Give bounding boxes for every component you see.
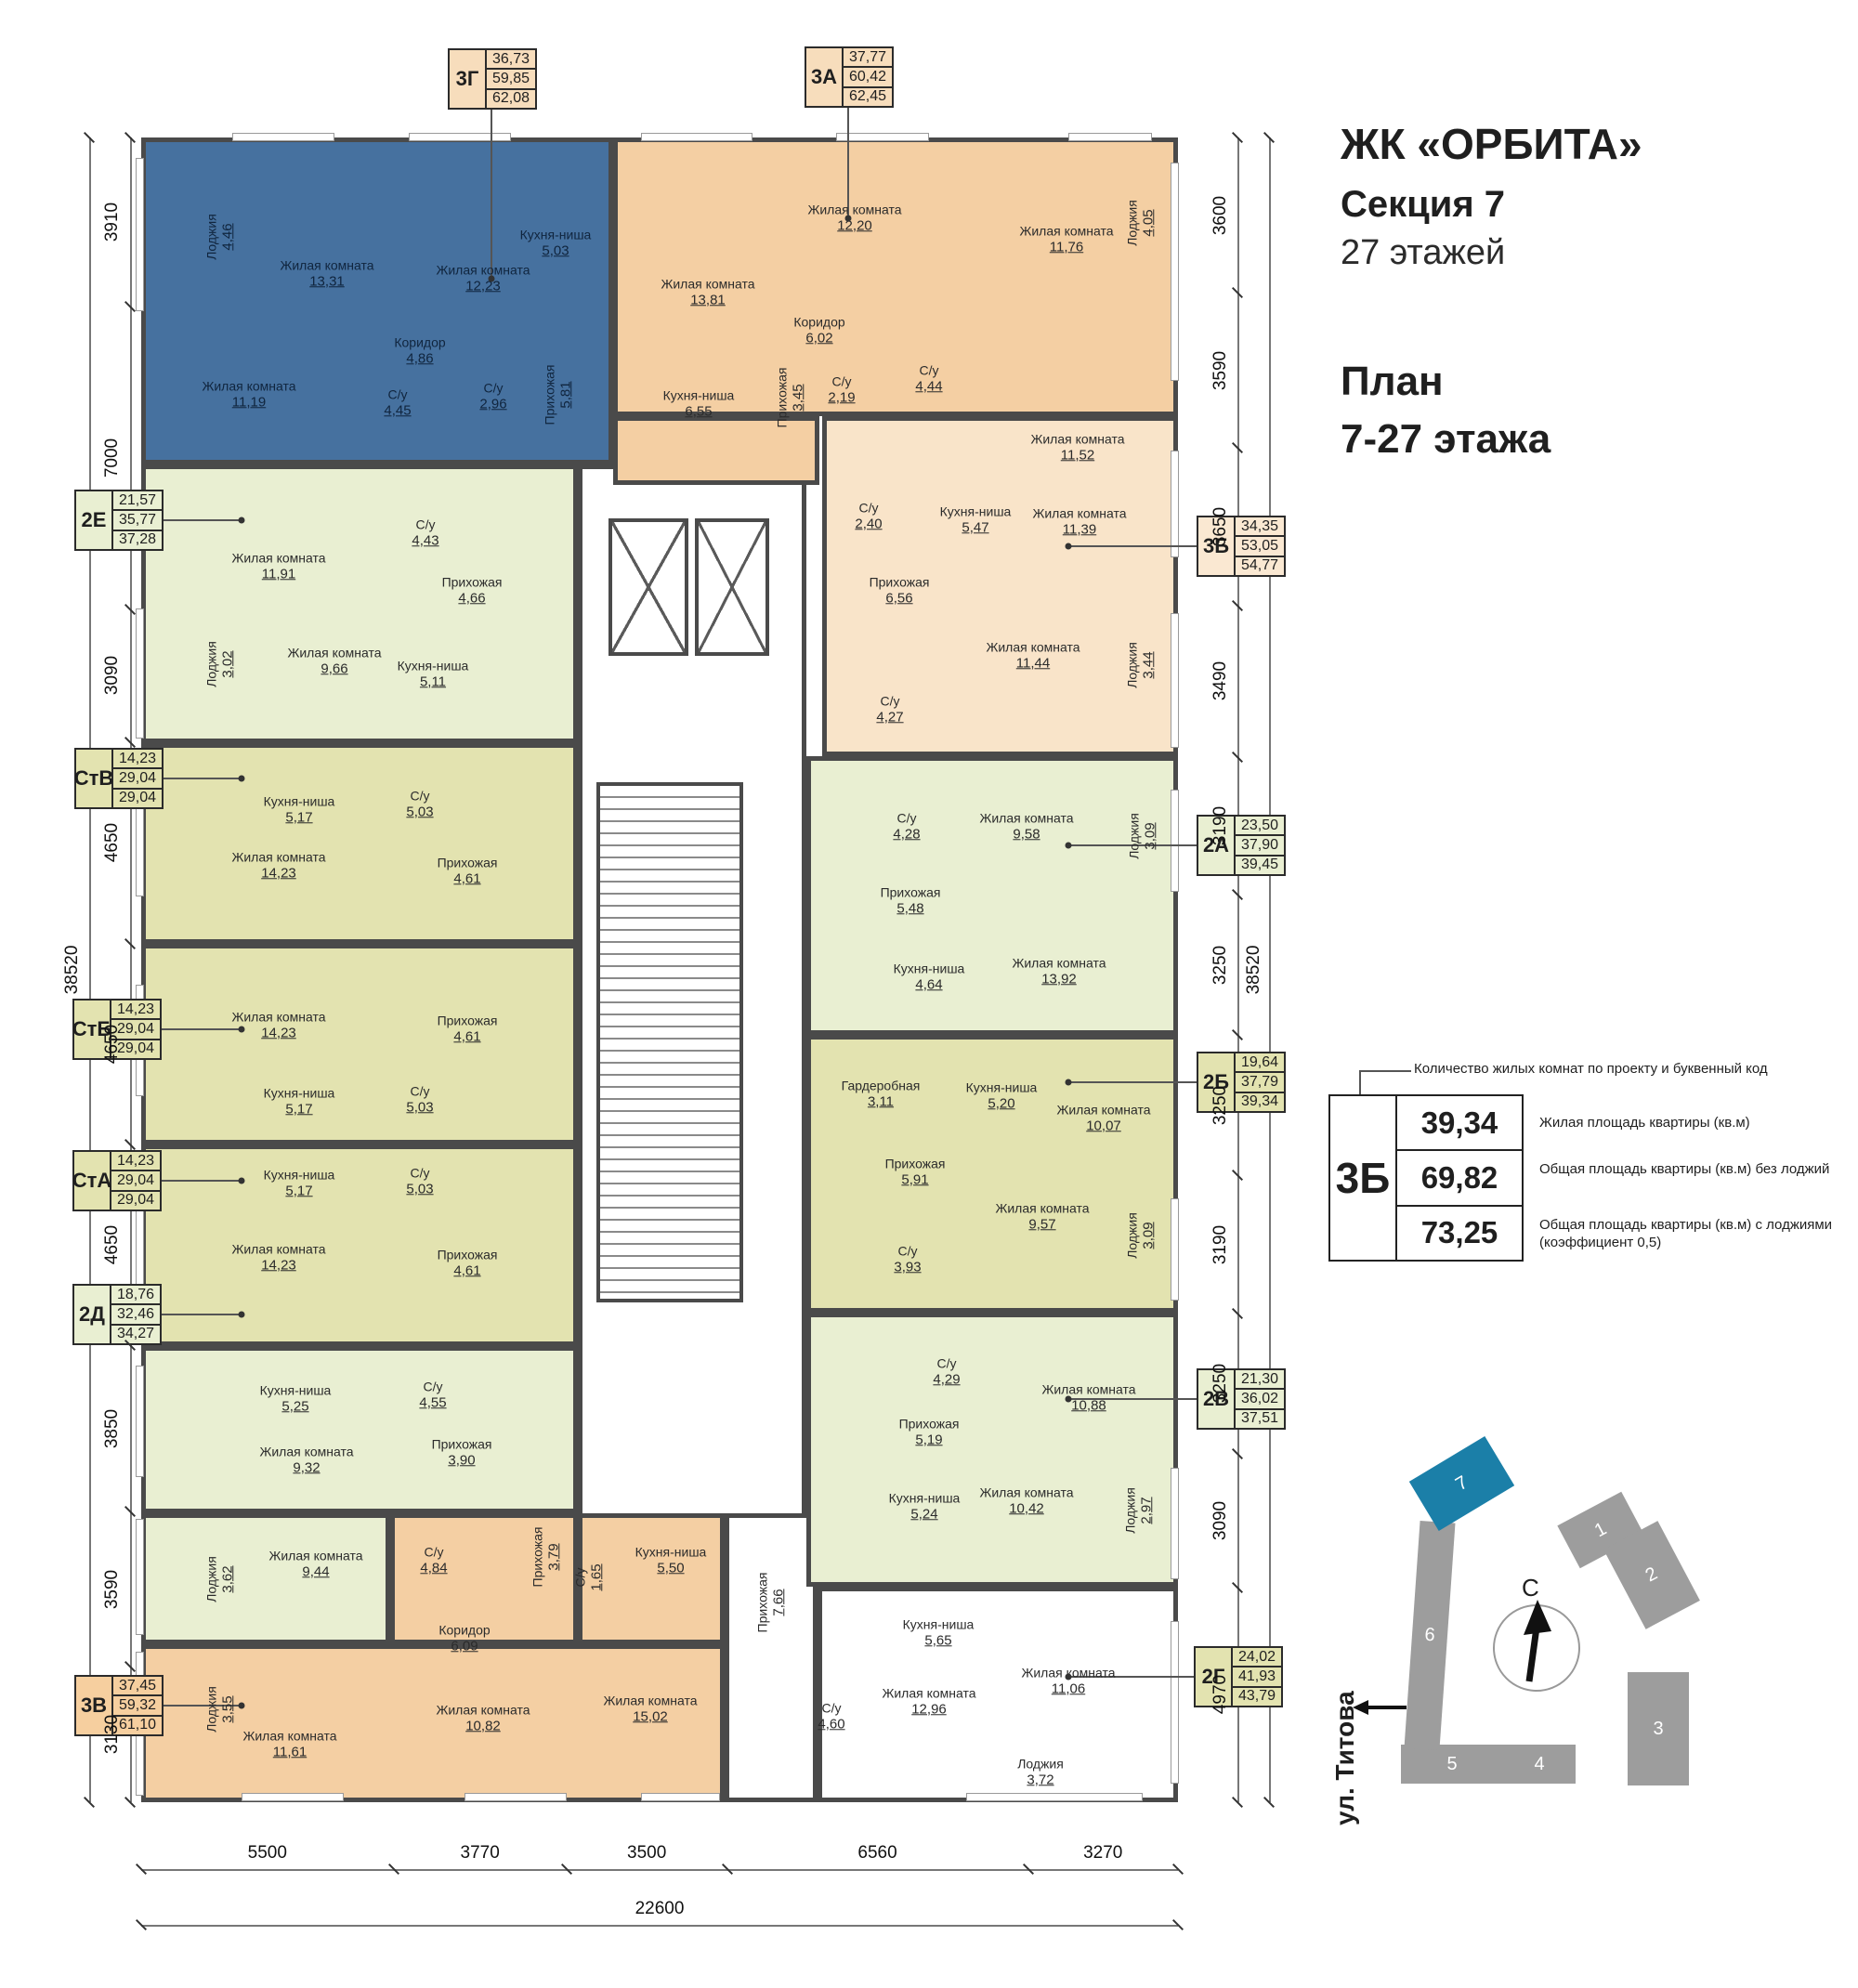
dimension-value: 4650 xyxy=(102,1025,123,1064)
apartment-area-value: 14,23 xyxy=(111,1152,160,1171)
room-label-stb: Кухня-ниша5,17 xyxy=(264,1086,335,1117)
label-connector-dot xyxy=(1066,1079,1072,1086)
apartment-area-value: 29,04 xyxy=(111,1171,160,1191)
dimension-value: 3650 xyxy=(1210,507,1231,546)
window-icon xyxy=(1171,451,1179,557)
room-name: Жилая комната xyxy=(259,1445,353,1459)
room-area: 3,55 xyxy=(220,1695,236,1722)
room-area: 4,55 xyxy=(419,1395,446,1411)
room-name: Прихожая xyxy=(530,1527,545,1588)
room-name: Прихожая xyxy=(755,1573,770,1633)
apartment-code: 3Г xyxy=(450,50,487,108)
room-label-2g: Кухня-ниша5,65 xyxy=(903,1617,975,1648)
room-label-2e: Жилая комната11,91 xyxy=(231,551,325,582)
street-arrow-shaft xyxy=(1367,1706,1407,1709)
apartment-areas: 36,7359,8562,08 xyxy=(487,50,535,108)
room-label-3g: Коридор4,86 xyxy=(394,335,445,366)
legend-callout-line-v xyxy=(1359,1070,1361,1094)
room-area: 4,86 xyxy=(406,351,433,367)
room-label-stv: Кухня-ниша5,17 xyxy=(264,794,335,825)
apartment-area-value: 36,73 xyxy=(487,50,535,70)
legend-desc-total-loggia: Общая площадь квартиры (кв.м) с лоджиями… xyxy=(1539,1217,1858,1252)
apartment-area-value: 21,57 xyxy=(113,491,162,511)
room-area: 3,79 xyxy=(546,1543,562,1570)
room-name: Кухня-ниша xyxy=(398,659,469,674)
room-name: Жилая комната xyxy=(231,1242,325,1257)
room-label-3a: Жилая комната11,76 xyxy=(1019,224,1113,255)
room-area: 4,84 xyxy=(420,1561,447,1576)
room-label-3a: Кухня-ниша6,55 xyxy=(663,388,735,419)
room-name: Жилая комната xyxy=(979,811,1073,826)
apartment-info-3a: 3А37,7760,4262,45 xyxy=(805,46,894,108)
room-label-2b: С/у3,93 xyxy=(894,1244,921,1275)
room-label-stb: С/у5,03 xyxy=(406,1084,433,1115)
room-name: Жилая комната xyxy=(268,1549,362,1563)
apartment-areas: 14,2329,0429,04 xyxy=(111,1152,160,1210)
room-name: Жилая комната xyxy=(242,1729,336,1744)
apartment-area-value: 19,64 xyxy=(1236,1053,1284,1073)
dimension-value: 3850 xyxy=(102,1409,123,1448)
label-connector-dot xyxy=(1066,1396,1072,1403)
room-name: Жилая комната xyxy=(436,263,530,278)
room-name: С/у xyxy=(384,387,411,402)
room-label-3g: Лоджия4,46 xyxy=(204,214,235,260)
dimension-line xyxy=(89,137,91,1802)
room-label-3a: С/у2,19 xyxy=(828,374,855,405)
room-name: Лоджия xyxy=(204,214,219,260)
room-area: 5,19 xyxy=(915,1432,942,1448)
room-name: Прихожая xyxy=(775,368,790,428)
room-area: 3,09 xyxy=(1143,822,1158,849)
room-label-2v: Лоджия2,97 xyxy=(1123,1487,1154,1534)
room-label-2d: Кухня-ниша5,25 xyxy=(260,1383,332,1414)
room-area: 5,20 xyxy=(988,1096,1014,1112)
room-label-2g: Жилая комната11,06 xyxy=(1021,1666,1115,1696)
room-area: 10,42 xyxy=(1009,1501,1044,1517)
room-area: 9,32 xyxy=(293,1460,320,1476)
dimension-value: 3490 xyxy=(1210,661,1231,700)
room-name: Лоджия xyxy=(1127,813,1142,859)
room-label-2v: Кухня-ниша5,24 xyxy=(889,1491,961,1522)
room-label-3a: Жилая комната12,20 xyxy=(807,203,901,233)
room-area: 5,03 xyxy=(406,1100,433,1116)
room-area: 14,23 xyxy=(261,1026,296,1041)
legend-value-total-loggia: 73,25 xyxy=(1397,1207,1522,1260)
label-connector xyxy=(160,1028,242,1030)
apartment-code: СтВ xyxy=(76,750,113,807)
dimension-value: 38520 xyxy=(1244,946,1264,995)
room-label-3v: Жилая комната11,61 xyxy=(242,1729,336,1759)
label-connector xyxy=(160,1180,242,1182)
room-name: Жилая комната xyxy=(231,850,325,865)
apartment-area-value: 60,42 xyxy=(844,68,892,87)
room-label-2g: С/у4,60 xyxy=(818,1701,844,1732)
room-area: 10,82 xyxy=(465,1719,501,1734)
label-connector xyxy=(1068,545,1197,547)
room-label-2d: С/у4,55 xyxy=(419,1380,446,1410)
room-area: 11,76 xyxy=(1050,240,1083,255)
room-label-3b: Жилая комната11,39 xyxy=(1032,506,1126,537)
room-area: 5,17 xyxy=(285,810,312,826)
site-section-4: 4 xyxy=(1503,1745,1576,1784)
room-name: Прихожая xyxy=(432,1437,492,1452)
page-header: ЖК «ОРБИТА» Секция 7 27 этажей План 7-27… xyxy=(1341,119,1642,463)
floors-subtitle: 27 этажей xyxy=(1341,233,1642,273)
apartment-code: 2Д xyxy=(74,1286,111,1343)
dimension-line xyxy=(141,1925,1178,1927)
room-label-3g: С/у4,45 xyxy=(384,387,411,418)
room-area: 5,17 xyxy=(285,1102,312,1118)
room-label-3g: Жилая комната11,19 xyxy=(202,379,295,410)
label-connector xyxy=(1068,1081,1197,1083)
room-label-3v: Жилая комната10,82 xyxy=(436,1703,530,1733)
room-label-3v: Прихожая3,79 xyxy=(530,1527,561,1588)
apartment-stb-block-0 xyxy=(141,944,578,1144)
label-connector-dot xyxy=(239,776,245,782)
dimension-value: 6560 xyxy=(857,1843,896,1864)
room-name: Кухня-ниша xyxy=(264,794,335,809)
window-icon xyxy=(409,133,511,141)
apartment-areas: 19,6437,7939,34 xyxy=(1236,1053,1284,1111)
room-name: Жилая комната xyxy=(1041,1382,1135,1397)
room-label-sta: Прихожая4,61 xyxy=(438,1248,498,1278)
room-label-2v: Жилая комната10,88 xyxy=(1041,1382,1135,1413)
room-name: Жилая комната xyxy=(231,551,325,566)
room-label-2a: Жилая комната9,58 xyxy=(979,811,1073,842)
complex-title: ЖК «ОРБИТА» xyxy=(1341,119,1642,169)
room-area: 2,96 xyxy=(479,397,506,412)
room-label-2a: Жилая комната13,92 xyxy=(1012,956,1106,987)
room-area: 15,02 xyxy=(633,1709,668,1725)
apartment-2v-block-0 xyxy=(806,1313,1178,1587)
room-name: Жилая комната xyxy=(995,1201,1089,1216)
room-name: Жилая комната xyxy=(1012,956,1106,971)
room-label-3b: Жилая комната11,52 xyxy=(1030,432,1124,463)
apartment-area-value: 36,02 xyxy=(1236,1390,1284,1409)
room-name: Кухня-ниша xyxy=(940,504,1012,519)
site-section-7-highlighted: 7 xyxy=(1409,1436,1514,1531)
window-icon xyxy=(966,1793,1143,1801)
room-area: 10,07 xyxy=(1086,1118,1121,1134)
apartment-area-value: 54,77 xyxy=(1236,557,1284,575)
window-icon xyxy=(136,158,144,311)
apartment-area-value: 43,79 xyxy=(1233,1688,1281,1706)
room-label-stv: Прихожая4,61 xyxy=(438,856,498,886)
room-label-3v: Кухня-ниша5,50 xyxy=(635,1545,707,1576)
dimension-value: 3500 xyxy=(627,1843,666,1864)
room-label-2a: Лоджия3,09 xyxy=(1127,813,1158,859)
room-label-2g: Жилая комната12,96 xyxy=(882,1686,975,1717)
apartment-2b-block-0 xyxy=(806,1035,1178,1313)
label-connector xyxy=(491,108,492,279)
label-connector-dot xyxy=(845,216,852,222)
room-area: 5,03 xyxy=(542,243,569,259)
apartment-area-value: 29,04 xyxy=(113,769,162,789)
dimension-value: 3190 xyxy=(1210,1225,1231,1264)
room-name: Жилая комната xyxy=(280,258,373,273)
room-label-stv: Жилая комната14,23 xyxy=(231,850,325,881)
room-area: 3,90 xyxy=(448,1453,475,1469)
room-name: Жилая комната xyxy=(807,203,901,217)
window-icon xyxy=(136,608,144,739)
street-label: ул. Титова xyxy=(1330,1630,1360,1825)
apartment-2g-block-0 xyxy=(725,1513,818,1802)
room-label-3b: С/у2,40 xyxy=(855,501,882,531)
room-name: Лоджия xyxy=(204,1556,219,1602)
dimension-value: 5500 xyxy=(248,1843,287,1864)
apartment-area-value: 53,05 xyxy=(1236,537,1284,556)
room-name: Кухня-ниша xyxy=(520,228,592,242)
room-name: Лоджия xyxy=(204,641,219,687)
apartment-areas: 21,5735,7737,28 xyxy=(113,491,162,549)
room-name: Коридор xyxy=(793,315,844,330)
room-name: С/у xyxy=(893,811,920,826)
apartment-areas: 37,7760,4262,45 xyxy=(844,48,892,106)
apartment-areas: 24,0241,9343,79 xyxy=(1233,1648,1281,1706)
room-area: 11,19 xyxy=(232,395,266,411)
room-area: 4,29 xyxy=(933,1372,960,1388)
dimension-value: 3250 xyxy=(1210,1364,1231,1403)
apartment-area-value: 14,23 xyxy=(113,750,162,769)
room-label-stb: Жилая комната14,23 xyxy=(231,1010,325,1040)
room-label-3a: С/у4,44 xyxy=(915,363,942,394)
room-area: 6,02 xyxy=(805,331,832,347)
room-area: 5,17 xyxy=(285,1184,312,1199)
room-area: 3,62 xyxy=(220,1565,236,1592)
room-name: С/у xyxy=(420,1545,447,1560)
room-name: Прихожая xyxy=(885,1157,946,1171)
room-name: С/у xyxy=(933,1356,960,1371)
room-label-3a: Жилая комната13,81 xyxy=(661,277,754,307)
room-name: Лоджия xyxy=(204,1686,219,1733)
room-name: Жилая комната xyxy=(1056,1103,1150,1118)
room-name: С/у xyxy=(828,374,855,389)
room-name: Жилая комната xyxy=(202,379,295,394)
room-area: 3,44 xyxy=(1141,651,1157,678)
room-label-3b: Жилая комната11,44 xyxy=(986,640,1079,671)
room-label-2e: С/у4,43 xyxy=(412,517,438,548)
room-area: 4,28 xyxy=(893,827,920,843)
room-area: 4,45 xyxy=(384,403,411,419)
dimension-value: 22600 xyxy=(635,1899,685,1919)
apartment-area-value: 59,85 xyxy=(487,70,535,89)
room-name: Жилая комната xyxy=(231,1010,325,1025)
room-area: 13,31 xyxy=(309,274,345,290)
room-name: С/у xyxy=(818,1701,844,1716)
dimension-value: 4970 xyxy=(1210,1675,1231,1714)
room-name: Прихожая xyxy=(881,885,941,900)
room-area: 9,44 xyxy=(302,1564,329,1580)
room-area: 3,93 xyxy=(894,1260,921,1275)
dimension-value: 3910 xyxy=(102,203,123,242)
legend-apartment-code: 3Б xyxy=(1330,1096,1397,1260)
room-label-3a: Прихожая3,45 xyxy=(775,368,805,428)
room-label-3b: Кухня-ниша5,47 xyxy=(940,504,1012,535)
apartment-area-value: 32,46 xyxy=(111,1305,160,1325)
room-name: Кухня-ниша xyxy=(635,1545,707,1560)
room-label-3v: Жилая комната15,02 xyxy=(603,1694,697,1724)
label-connector xyxy=(162,778,242,779)
room-label-3g: Жилая комната13,31 xyxy=(280,258,373,289)
room-area: 5,47 xyxy=(962,520,988,536)
room-area: 5,24 xyxy=(910,1507,937,1523)
room-name: Лоджия xyxy=(1123,1487,1138,1534)
apartment-2d-block-0 xyxy=(141,1346,578,1513)
window-icon xyxy=(1171,1198,1179,1301)
room-area: 5,50 xyxy=(657,1561,684,1576)
plan-title-line1: План xyxy=(1341,359,1642,405)
dimension-value: 3130 xyxy=(102,1715,123,1754)
window-icon xyxy=(641,1793,720,1801)
room-area: 14,23 xyxy=(261,1258,296,1274)
apartment-area-value: 24,02 xyxy=(1233,1648,1281,1668)
apartment-info-sta: СтА14,2329,0429,04 xyxy=(72,1150,162,1211)
room-label-3b: Прихожая6,56 xyxy=(870,575,930,606)
room-name: Прихожая xyxy=(438,1014,498,1028)
apartment-area-value: 34,35 xyxy=(1236,517,1284,537)
dimension-value: 3250 xyxy=(1210,946,1231,985)
room-area: 6,56 xyxy=(885,591,912,607)
room-label-3a: Коридор6,02 xyxy=(793,315,844,346)
room-name: С/у xyxy=(876,694,903,709)
elevator-shaft-icon xyxy=(695,518,769,656)
site-section-3: 3 xyxy=(1628,1672,1689,1785)
room-area: 12,23 xyxy=(465,279,501,294)
apartment-info-stv: СтВ14,2329,0429,04 xyxy=(74,748,164,809)
room-label-2g: Прихожая7,66 xyxy=(755,1573,786,1633)
floor-plan-page: ЖК «ОРБИТА» Секция 7 27 этажей План 7-27… xyxy=(0,0,1858,1988)
room-name: С/у xyxy=(406,789,433,804)
apartment-area-value: 39,45 xyxy=(1236,857,1284,874)
section-title: Секция 7 xyxy=(1341,184,1642,226)
room-area: 4,05 xyxy=(1141,209,1157,236)
room-area: 6,09 xyxy=(451,1639,478,1654)
room-name: С/у xyxy=(573,1563,588,1590)
room-label-2e: Прихожая4,66 xyxy=(442,575,503,606)
room-area: 14,23 xyxy=(261,866,296,882)
site-section-5: 5 xyxy=(1401,1745,1503,1784)
room-name: Жилая комната xyxy=(661,277,754,292)
room-area: 2,19 xyxy=(828,390,855,406)
room-name: Прихожая xyxy=(442,575,503,590)
room-label-2a: С/у4,28 xyxy=(893,811,920,842)
room-label-2v: Жилая комната10,42 xyxy=(979,1485,1073,1516)
apartment-area-value: 62,08 xyxy=(487,90,535,108)
apartment-stv-block-0 xyxy=(141,743,578,944)
room-area: 9,57 xyxy=(1028,1217,1055,1233)
room-label-3a: Лоджия4,05 xyxy=(1125,200,1156,246)
room-label-2b: Кухня-ниша5,20 xyxy=(966,1080,1038,1111)
room-label-2d: Лоджия3,62 xyxy=(204,1556,235,1602)
label-connector-dot xyxy=(1066,1674,1072,1681)
apartment-2g-block-1 xyxy=(818,1587,1178,1802)
dimension-line xyxy=(130,137,132,1802)
room-name: Прихожая xyxy=(438,856,498,870)
room-name: Лоджия xyxy=(1125,200,1140,246)
apartment-areas: 21,3036,0237,51 xyxy=(1236,1370,1284,1428)
room-area: 13,81 xyxy=(690,293,726,308)
room-label-2d: Жилая комната9,32 xyxy=(259,1445,353,1475)
apartment-area-value: 59,32 xyxy=(113,1696,162,1716)
room-area: 4,61 xyxy=(453,871,480,887)
room-name: Кухня-ниша xyxy=(903,1617,975,1632)
room-label-2e: Лоджия3,02 xyxy=(204,641,235,687)
room-name: Жилая комната xyxy=(986,640,1079,655)
dimension-value: 3600 xyxy=(1210,196,1231,235)
room-label-2b: Прихожая5,91 xyxy=(885,1157,946,1187)
room-label-2a: Кухня-ниша4,64 xyxy=(894,961,965,992)
room-name: Жилая комната xyxy=(1032,506,1126,521)
room-name: Лоджия xyxy=(1125,1212,1140,1259)
legend-callout-text: Количество жилых комнат по проекту и бук… xyxy=(1414,1061,1858,1077)
label-connector-dot xyxy=(1066,543,1072,550)
dimension-value: 3090 xyxy=(102,656,123,695)
dimension-line xyxy=(141,1869,1178,1871)
apartment-area-value: 41,93 xyxy=(1233,1668,1281,1687)
apartment-area-value: 37,90 xyxy=(1236,836,1284,856)
apartment-areas: 18,7632,4634,27 xyxy=(111,1286,160,1343)
apartment-area-value: 21,30 xyxy=(1236,1370,1284,1390)
room-name: С/у xyxy=(412,517,438,532)
room-area: 9,66 xyxy=(321,661,347,677)
room-name: Кухня-ниша xyxy=(264,1168,335,1183)
apartment-area-value: 23,50 xyxy=(1236,817,1284,836)
room-area: 4,66 xyxy=(458,591,485,607)
apartment-info-2g: 2Г24,0241,9343,79 xyxy=(1194,1646,1283,1707)
room-name: Кухня-ниша xyxy=(264,1086,335,1101)
dimension-value: 3250 xyxy=(1210,1086,1231,1125)
apartment-info-2e: 2Е21,5735,7737,28 xyxy=(74,490,164,551)
room-label-sta: С/у5,03 xyxy=(406,1166,433,1197)
room-label-3v: Коридор6,09 xyxy=(438,1623,490,1654)
room-label-3v: С/у4,84 xyxy=(420,1545,447,1576)
apartment-code: СтА xyxy=(74,1152,111,1210)
room-label-2e: Кухня-ниша5,11 xyxy=(398,659,469,689)
apartment-areas: 14,2329,0429,04 xyxy=(113,750,162,807)
room-label-2b: Жилая комната10,07 xyxy=(1056,1103,1150,1133)
room-area: 4,60 xyxy=(818,1717,844,1733)
stairwell-icon xyxy=(596,782,743,1302)
apartment-area-value: 34,27 xyxy=(111,1326,160,1343)
room-name: Гардеробная xyxy=(842,1079,921,1093)
apartment-area-value: 37,77 xyxy=(844,48,892,68)
room-area: 4,61 xyxy=(453,1263,480,1279)
room-name: Жилая комната xyxy=(979,1485,1073,1500)
window-icon xyxy=(1171,613,1179,748)
room-area: 5,03 xyxy=(406,1182,433,1197)
apartment-code: 3А xyxy=(806,48,844,106)
room-area: 1,65 xyxy=(589,1563,605,1590)
dimension-line xyxy=(1237,137,1239,1802)
room-area: 4,43 xyxy=(412,533,438,549)
room-name: Жилая комната xyxy=(882,1686,975,1701)
room-label-3b: Лоджия3,44 xyxy=(1125,642,1156,688)
room-area: 5,65 xyxy=(924,1633,951,1649)
room-area: 11,44 xyxy=(1016,656,1050,672)
apartment-area-value: 37,51 xyxy=(1236,1410,1284,1428)
room-name: Жилая комната xyxy=(1019,224,1113,239)
room-area: 12,20 xyxy=(837,218,872,234)
room-name: Коридор xyxy=(438,1623,490,1638)
room-area: 2,40 xyxy=(855,517,882,532)
room-name: Кухня-ниша xyxy=(889,1491,961,1506)
window-icon xyxy=(1171,163,1179,381)
room-name: Прихожая xyxy=(870,575,930,590)
room-label-2b: Гардеробная3,11 xyxy=(842,1079,921,1109)
apartment-2a-block-0 xyxy=(806,756,1178,1035)
dimension-value: 3590 xyxy=(102,1570,123,1609)
apartment-code: 2Е xyxy=(76,491,113,549)
